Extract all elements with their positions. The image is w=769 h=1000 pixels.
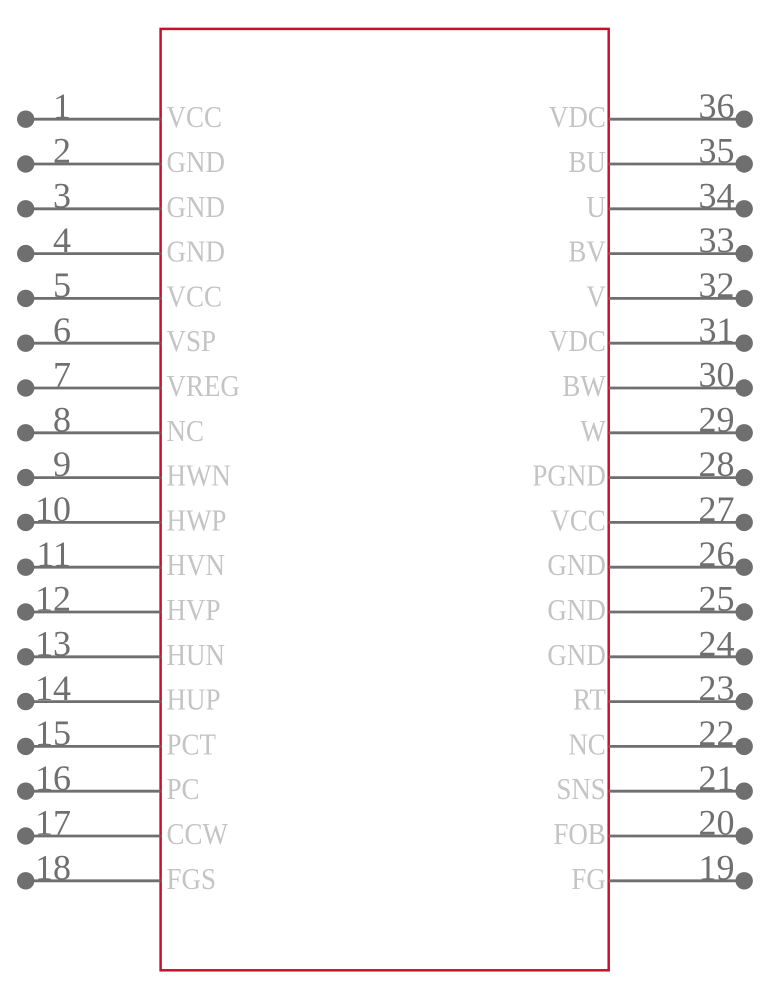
svg-text:35: 35 [699, 131, 735, 171]
svg-text:20: 20 [699, 803, 735, 843]
svg-text:NC: NC [167, 414, 204, 448]
svg-text:VDC: VDC [549, 101, 606, 135]
svg-text:9: 9 [53, 444, 71, 484]
svg-text:GND: GND [547, 549, 605, 583]
svg-text:HWP: HWP [167, 504, 227, 538]
svg-text:28: 28 [699, 444, 735, 484]
svg-text:2: 2 [53, 131, 71, 171]
svg-text:13: 13 [35, 623, 71, 663]
svg-text:15: 15 [35, 713, 71, 753]
svg-text:SNS: SNS [556, 773, 605, 807]
svg-text:31: 31 [699, 310, 735, 350]
svg-text:VSP: VSP [167, 325, 216, 359]
svg-text:BU: BU [568, 145, 605, 179]
svg-text:GND: GND [167, 190, 225, 224]
svg-text:22: 22 [699, 713, 735, 753]
svg-text:10: 10 [35, 489, 71, 529]
svg-text:GND: GND [167, 145, 225, 179]
svg-text:GND: GND [547, 593, 605, 627]
svg-text:PGND: PGND [532, 459, 605, 493]
svg-text:GND: GND [167, 235, 225, 269]
svg-text:25: 25 [699, 579, 735, 619]
svg-text:HWN: HWN [167, 459, 231, 493]
svg-text:36: 36 [699, 86, 735, 126]
svg-text:34: 34 [699, 175, 735, 215]
svg-text:19: 19 [699, 847, 735, 887]
svg-text:14: 14 [35, 668, 71, 708]
svg-text:BW: BW [562, 369, 606, 403]
svg-text:U: U [586, 190, 605, 224]
svg-text:11: 11 [36, 534, 71, 574]
svg-text:GND: GND [547, 638, 605, 672]
svg-text:RT: RT [573, 683, 606, 717]
svg-text:12: 12 [35, 579, 71, 619]
svg-text:PCT: PCT [167, 728, 217, 762]
svg-text:24: 24 [699, 623, 735, 663]
svg-text:3: 3 [53, 175, 71, 215]
svg-text:4: 4 [53, 220, 71, 260]
svg-text:17: 17 [35, 803, 71, 843]
svg-text:VREG: VREG [167, 369, 240, 403]
svg-text:HVP: HVP [167, 593, 221, 627]
svg-text:8: 8 [53, 399, 71, 439]
svg-text:5: 5 [53, 265, 71, 305]
svg-text:29: 29 [699, 399, 735, 439]
svg-text:26: 26 [699, 534, 735, 574]
svg-text:VCC: VCC [167, 101, 222, 135]
svg-text:FG: FG [571, 862, 605, 896]
svg-text:VCC: VCC [167, 280, 222, 314]
svg-text:HUP: HUP [167, 683, 221, 717]
svg-text:23: 23 [699, 668, 735, 708]
svg-text:FOB: FOB [553, 817, 605, 851]
svg-text:CCW: CCW [167, 817, 229, 851]
svg-text:33: 33 [699, 220, 735, 260]
svg-text:VCC: VCC [550, 504, 605, 538]
svg-text:VDC: VDC [549, 325, 606, 359]
svg-text:30: 30 [699, 355, 735, 395]
svg-text:BV: BV [568, 235, 605, 269]
svg-text:PC: PC [167, 773, 200, 807]
svg-text:HVN: HVN [167, 549, 225, 583]
svg-text:7: 7 [53, 355, 71, 395]
svg-text:27: 27 [699, 489, 735, 529]
svg-text:NC: NC [568, 728, 605, 762]
svg-text:FGS: FGS [167, 862, 216, 896]
svg-text:32: 32 [699, 265, 735, 305]
svg-text:18: 18 [35, 847, 71, 887]
svg-text:6: 6 [53, 310, 71, 350]
svg-text:W: W [580, 414, 606, 448]
svg-text:HUN: HUN [167, 638, 225, 672]
svg-text:21: 21 [699, 758, 735, 798]
svg-text:16: 16 [35, 758, 71, 798]
svg-text:1: 1 [53, 86, 71, 126]
svg-text:V: V [586, 280, 605, 314]
